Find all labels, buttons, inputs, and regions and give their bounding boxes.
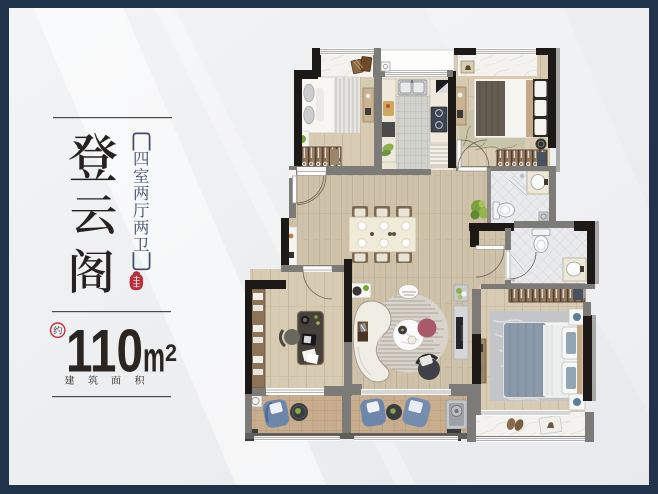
svg-text:m: m — [143, 334, 165, 381]
svg-text:2: 2 — [165, 340, 177, 367]
svg-text:110: 110 — [66, 318, 143, 385]
